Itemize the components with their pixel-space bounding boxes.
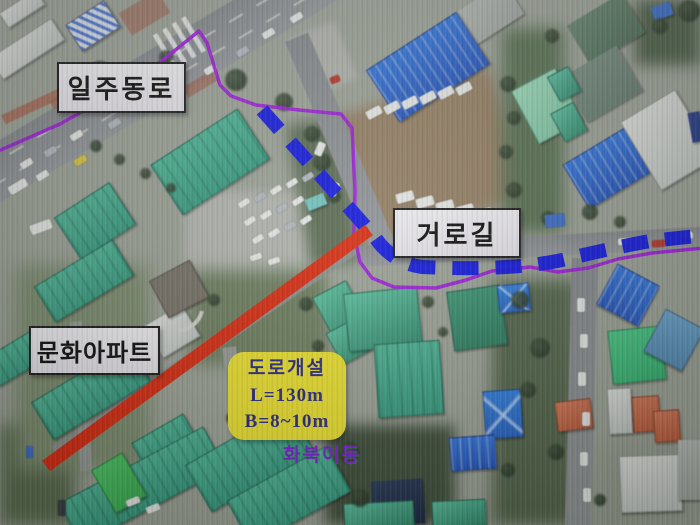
building	[678, 440, 700, 500]
info-title: 도로개설	[248, 356, 326, 383]
building	[653, 409, 681, 443]
building	[54, 182, 137, 260]
car	[583, 488, 591, 502]
road-label-iljudong: 일주동로	[57, 62, 186, 113]
building	[607, 387, 633, 434]
tree	[140, 168, 151, 179]
tree	[208, 294, 220, 306]
tree	[438, 327, 448, 337]
tree	[501, 463, 515, 477]
tree	[422, 296, 434, 308]
car	[580, 334, 588, 348]
building	[619, 454, 683, 513]
car	[58, 500, 66, 516]
truck	[544, 213, 565, 228]
building	[596, 263, 660, 326]
tree	[500, 76, 516, 92]
building	[431, 499, 486, 525]
building	[373, 340, 444, 418]
tree	[313, 153, 331, 171]
tree	[520, 382, 536, 398]
tree	[506, 182, 522, 198]
tree	[312, 340, 324, 352]
district-name-text: 화북이동	[283, 440, 361, 467]
tree	[594, 494, 606, 506]
tree	[582, 204, 598, 220]
car	[652, 240, 665, 248]
building	[0, 0, 45, 29]
tree	[304, 126, 320, 142]
building	[449, 434, 497, 471]
apartment-label-text: 문화아파트	[37, 333, 152, 368]
info-length: L=130m	[250, 383, 324, 410]
info-width: B=8~10m	[245, 409, 330, 436]
tree	[530, 338, 550, 358]
tree	[166, 183, 176, 193]
car	[582, 412, 590, 426]
tree	[351, 489, 369, 507]
tree	[90, 140, 102, 152]
car	[580, 452, 588, 466]
tree	[225, 69, 247, 91]
car	[577, 298, 585, 312]
construction-info-box: 도로개설 L=130m B=8~10m	[228, 352, 346, 440]
tree	[507, 111, 521, 125]
building	[65, 0, 121, 52]
car	[29, 219, 53, 236]
tree	[614, 216, 626, 228]
tree	[511, 291, 529, 309]
tree	[652, 18, 668, 34]
tree	[114, 154, 125, 165]
tree	[548, 444, 564, 460]
tree	[275, 93, 293, 111]
road-label-georo: 거로길	[393, 208, 521, 258]
building	[482, 389, 523, 440]
road-label-georo-text: 거로길	[417, 215, 498, 252]
tree	[678, 0, 700, 22]
car	[26, 446, 33, 458]
tree	[545, 29, 559, 43]
car	[578, 372, 586, 386]
tree	[499, 145, 513, 159]
tree	[299, 297, 313, 311]
apartment-label-munhwa: 문화아파트	[29, 326, 160, 375]
road-label-iljudong-text: 일주동로	[68, 69, 176, 106]
car	[680, 232, 693, 240]
car	[618, 238, 631, 246]
aerial-map-slide: 일주동로 거로길 문화아파트 도로개설 L=130m B=8~10m 화북이동	[0, 0, 700, 525]
